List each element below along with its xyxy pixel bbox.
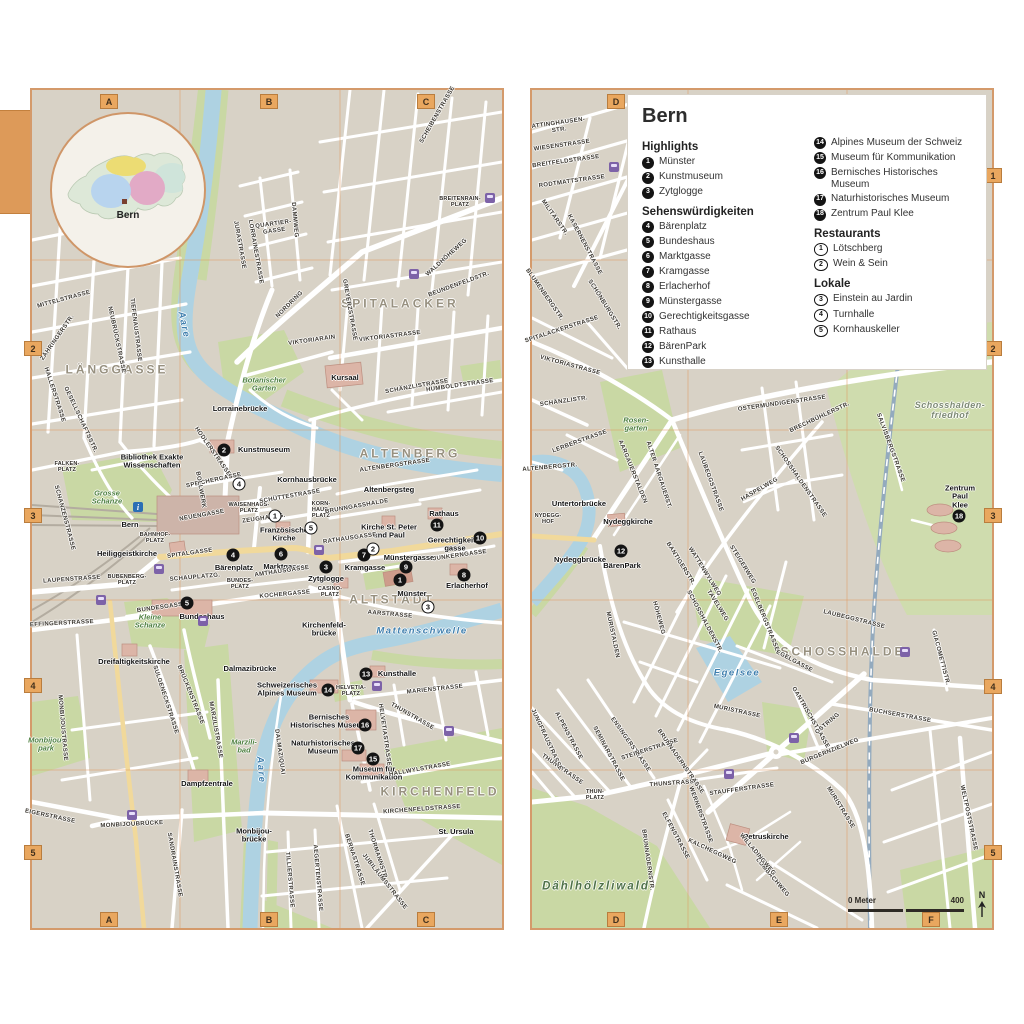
- sight-marker-18: 18: [953, 510, 966, 523]
- sight-marker-2: 2: [218, 444, 231, 457]
- legend-item-number: 3: [814, 294, 828, 307]
- tram-window: [156, 566, 162, 569]
- legend-item: 5Bundeshaus: [642, 236, 800, 249]
- legend-section-heading: Lokale: [814, 278, 972, 290]
- map-left: Bern LÄNGGASSESPITALACKERALTENBERGALTSTA…: [30, 88, 504, 930]
- legend-item-label: Bernisches Historisches Museum: [831, 167, 972, 191]
- legend-item: 15Museum für Kommunikation: [814, 152, 972, 165]
- sight-marker-14: 14: [322, 684, 335, 697]
- tram-stop-icon: [789, 733, 799, 743]
- tram-stop-icon: [96, 595, 106, 605]
- legend-item: 2Kunstmuseum: [642, 171, 800, 184]
- inset-city-label: Bern: [117, 210, 140, 221]
- scale-bar-line: [848, 909, 964, 912]
- legend-item: 7Kramgasse: [642, 266, 800, 279]
- bern-location-dot: [122, 199, 127, 204]
- sight-marker-15: 15: [367, 753, 380, 766]
- legend-item: 16Bernisches Historisches Museum: [814, 167, 972, 191]
- legend-item: 9Münstergasse: [642, 296, 800, 309]
- legend-item: 4Turnhalle: [814, 309, 972, 322]
- legend-item-label: Bundeshaus: [659, 236, 715, 248]
- tram-stop-icon: [314, 545, 324, 555]
- grid-row-5: 5: [24, 845, 42, 860]
- restaurant-marker-3: 3: [422, 601, 435, 614]
- legend-item: 17Naturhistorisches Museum: [814, 193, 972, 206]
- legend-item: 14Alpines Museum der Schweiz: [814, 137, 972, 150]
- legend-item-label: Wein & Sein: [833, 258, 888, 270]
- legend-item-label: Einstein au Jardin: [833, 293, 913, 305]
- sight-marker-12: 12: [615, 545, 628, 558]
- legend-item-number: 2: [814, 259, 828, 272]
- grid-col-A: A: [100, 94, 118, 109]
- tram-stop-icon: [444, 726, 454, 736]
- legend-item-label: Erlacherhof: [659, 281, 710, 293]
- legend-item: 6Marktgasse: [642, 251, 800, 264]
- legend-item-label: Münster: [659, 156, 695, 168]
- grid-row-3: 3: [984, 508, 1002, 523]
- tram-window: [374, 683, 380, 686]
- info-icon: i: [133, 502, 143, 512]
- legend-item-number: 17: [814, 194, 826, 206]
- tram-stop-icon: [900, 647, 910, 657]
- grid-row-4: 4: [984, 679, 1002, 694]
- tram-window: [316, 547, 322, 550]
- tram-window: [487, 195, 493, 198]
- legend-item: 3Zytglogge: [642, 186, 800, 199]
- legend-item-number: 1: [814, 243, 828, 256]
- tram-window: [98, 597, 104, 600]
- map-spread: Bern LÄNGGASSESPITALACKERALTENBERGALTSTA…: [0, 0, 1024, 1024]
- grid-row-5: 5: [984, 845, 1002, 860]
- sight-marker-3: 3: [320, 561, 333, 574]
- legend-title: Bern: [642, 105, 972, 128]
- legend-item-number: 1: [642, 157, 654, 169]
- legend-item-number: 13: [642, 356, 654, 368]
- legend-item: 8Erlacherhof: [642, 281, 800, 294]
- grid-col-C: C: [417, 94, 435, 109]
- tram-stop-icon: [409, 269, 419, 279]
- restaurant-marker-1: 1: [269, 510, 282, 523]
- legend-item-number: 8: [642, 281, 654, 293]
- restaurant-marker-5: 5: [305, 522, 318, 535]
- grid-col-D: D: [607, 94, 625, 109]
- tram-stop-icon: [609, 162, 619, 172]
- tram-window: [411, 271, 417, 274]
- tram-stop-icon: [485, 193, 495, 203]
- grid-col-D: D: [607, 912, 625, 927]
- legend-item-label: Rathaus: [659, 326, 696, 338]
- sight-marker-17: 17: [352, 742, 365, 755]
- sight-marker-5: 5: [181, 597, 194, 610]
- legend-item: 18Zentrum Paul Klee: [814, 208, 972, 221]
- tram-stop-icon: [724, 769, 734, 779]
- tram-window: [611, 164, 617, 167]
- legend-item-number: 7: [642, 266, 654, 278]
- legend-item-label: Gerechtigkeitsgasse: [659, 311, 750, 323]
- sight-marker-9: 9: [400, 561, 413, 574]
- switzerland-shape: [52, 114, 202, 264]
- legend-item: 1Lötschberg: [814, 243, 972, 256]
- tram-window: [902, 649, 908, 652]
- sight-marker-4: 4: [227, 549, 240, 562]
- legend-item-number: 4: [814, 309, 828, 322]
- grid-row-4: 4: [24, 678, 42, 693]
- legend-item-label: Lötschberg: [833, 243, 882, 255]
- legend-column-1: Highlights1Münster2Kunstmuseum3Zytglogge…: [642, 134, 800, 370]
- tram-stop-icon: [127, 810, 137, 820]
- scale-zero-label: 0 Meter: [848, 896, 876, 905]
- sight-marker-10: 10: [474, 532, 487, 545]
- restaurant-marker-4: 4: [233, 478, 246, 491]
- sight-marker-1: 1: [394, 574, 407, 587]
- grid-col-F: F: [922, 912, 940, 927]
- legend-item-label: Zentrum Paul Klee: [831, 208, 914, 220]
- scale-max-label: 400: [951, 896, 964, 905]
- grid-col-E: E: [770, 912, 788, 927]
- legend-item-label: Kunstmuseum: [659, 171, 723, 183]
- sight-marker-11: 11: [431, 519, 444, 532]
- legend-item: 1Münster: [642, 156, 800, 169]
- legend-item-number: 5: [642, 236, 654, 248]
- legend-item: 3Einstein au Jardin: [814, 293, 972, 306]
- grid-row-2: 2: [24, 341, 42, 356]
- grid-col-A: A: [100, 912, 118, 927]
- tram-window: [129, 812, 135, 815]
- legend-item-number: 16: [814, 167, 826, 179]
- legend-item-number: 5: [814, 325, 828, 338]
- tram-window: [200, 618, 206, 621]
- legend-item-number: 10: [642, 311, 654, 323]
- north-indicator: N: [976, 890, 988, 923]
- sight-marker-13: 13: [360, 668, 373, 681]
- legend-item-number: 12: [642, 341, 654, 353]
- tram-window: [726, 771, 732, 774]
- legend-item: 4Bärenplatz: [642, 221, 800, 234]
- legend-item-label: Kramgasse: [659, 266, 710, 278]
- legend-item-label: Alpines Museum der Schweiz: [831, 137, 962, 149]
- legend-item-number: 4: [642, 221, 654, 233]
- legend-item-number: 11: [642, 326, 654, 338]
- legend-item: 10Gerechtigkeitsgasse: [642, 311, 800, 324]
- grid-col-B: B: [260, 94, 278, 109]
- grid-row-3: 3: [24, 508, 42, 523]
- tram-stop-icon: [198, 616, 208, 626]
- tram-stop-icon: [154, 564, 164, 574]
- north-arrow-icon: [976, 900, 988, 918]
- grid-col-B: B: [260, 912, 278, 927]
- legend-item-label: Kornhauskeller: [833, 324, 900, 336]
- legend-item-label: Marktgasse: [659, 251, 711, 263]
- legend-item: 11Rathaus: [642, 326, 800, 339]
- map-right: Bern Highlights1Münster2Kunstmuseum3Zytg…: [530, 88, 994, 930]
- legend-item: 2Wein & Sein: [814, 258, 972, 271]
- bookmark-tab: [0, 110, 31, 214]
- legend-item-label: Kunsthalle: [659, 356, 706, 368]
- legend-item-label: Turnhalle: [833, 309, 874, 321]
- legend-item-label: Naturhistorisches Museum: [831, 193, 949, 205]
- legend-item-label: Münstergasse: [659, 296, 722, 308]
- legend-item-number: 6: [642, 251, 654, 263]
- legend-item-number: 3: [642, 187, 654, 199]
- legend-item-label: Museum für Kommunikation: [831, 152, 956, 164]
- tram-stop-icon: [372, 681, 382, 691]
- legend-item-number: 2: [642, 172, 654, 184]
- legend-section-heading: Highlights: [642, 141, 800, 153]
- legend-item: 5Kornhauskeller: [814, 324, 972, 337]
- switzerland-inset-map: Bern: [50, 112, 206, 268]
- legend-item-label: BärenPark: [659, 341, 706, 353]
- legend-item-number: 18: [814, 209, 826, 221]
- legend-item-number: 9: [642, 296, 654, 308]
- legend-panel: Bern Highlights1Münster2Kunstmuseum3Zytg…: [627, 94, 987, 370]
- legend-item-number: 14: [814, 137, 826, 149]
- sight-marker-8: 8: [458, 569, 471, 582]
- sight-marker-16: 16: [359, 719, 372, 732]
- restaurant-marker-2: 2: [367, 543, 380, 556]
- grid-col-C: C: [417, 912, 435, 927]
- legend-item: 12BärenPark: [642, 341, 800, 354]
- tram-window: [791, 735, 797, 738]
- sight-marker-6: 6: [275, 548, 288, 561]
- legend-section-heading: Restaurants: [814, 228, 972, 240]
- legend-section-heading: Sehenswürdigkeiten: [642, 206, 800, 218]
- legend-item: 13Kunsthalle: [642, 356, 800, 369]
- legend-item-label: Zytglogge: [659, 186, 703, 198]
- legend-item-label: Bärenplatz: [659, 221, 707, 233]
- legend-columns: Highlights1Münster2Kunstmuseum3Zytglogge…: [642, 134, 972, 370]
- legend-column-2: 14Alpines Museum der Schweiz15Museum für…: [814, 134, 972, 370]
- tram-window: [446, 728, 452, 731]
- north-label: N: [976, 890, 988, 900]
- legend-item-number: 15: [814, 152, 826, 164]
